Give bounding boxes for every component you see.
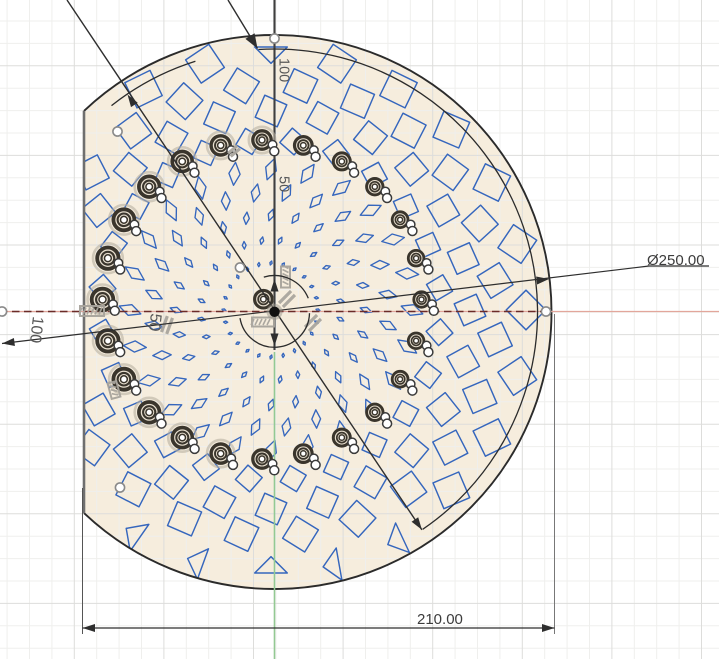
svg-text:Ø250.00: Ø250.00 (647, 252, 705, 269)
svg-text:100: 100 (276, 58, 292, 82)
svg-text:100: 100 (26, 316, 46, 345)
svg-text:50: 50 (145, 313, 164, 333)
svg-text:50: 50 (276, 176, 292, 192)
svg-text:210.00: 210.00 (417, 611, 463, 628)
